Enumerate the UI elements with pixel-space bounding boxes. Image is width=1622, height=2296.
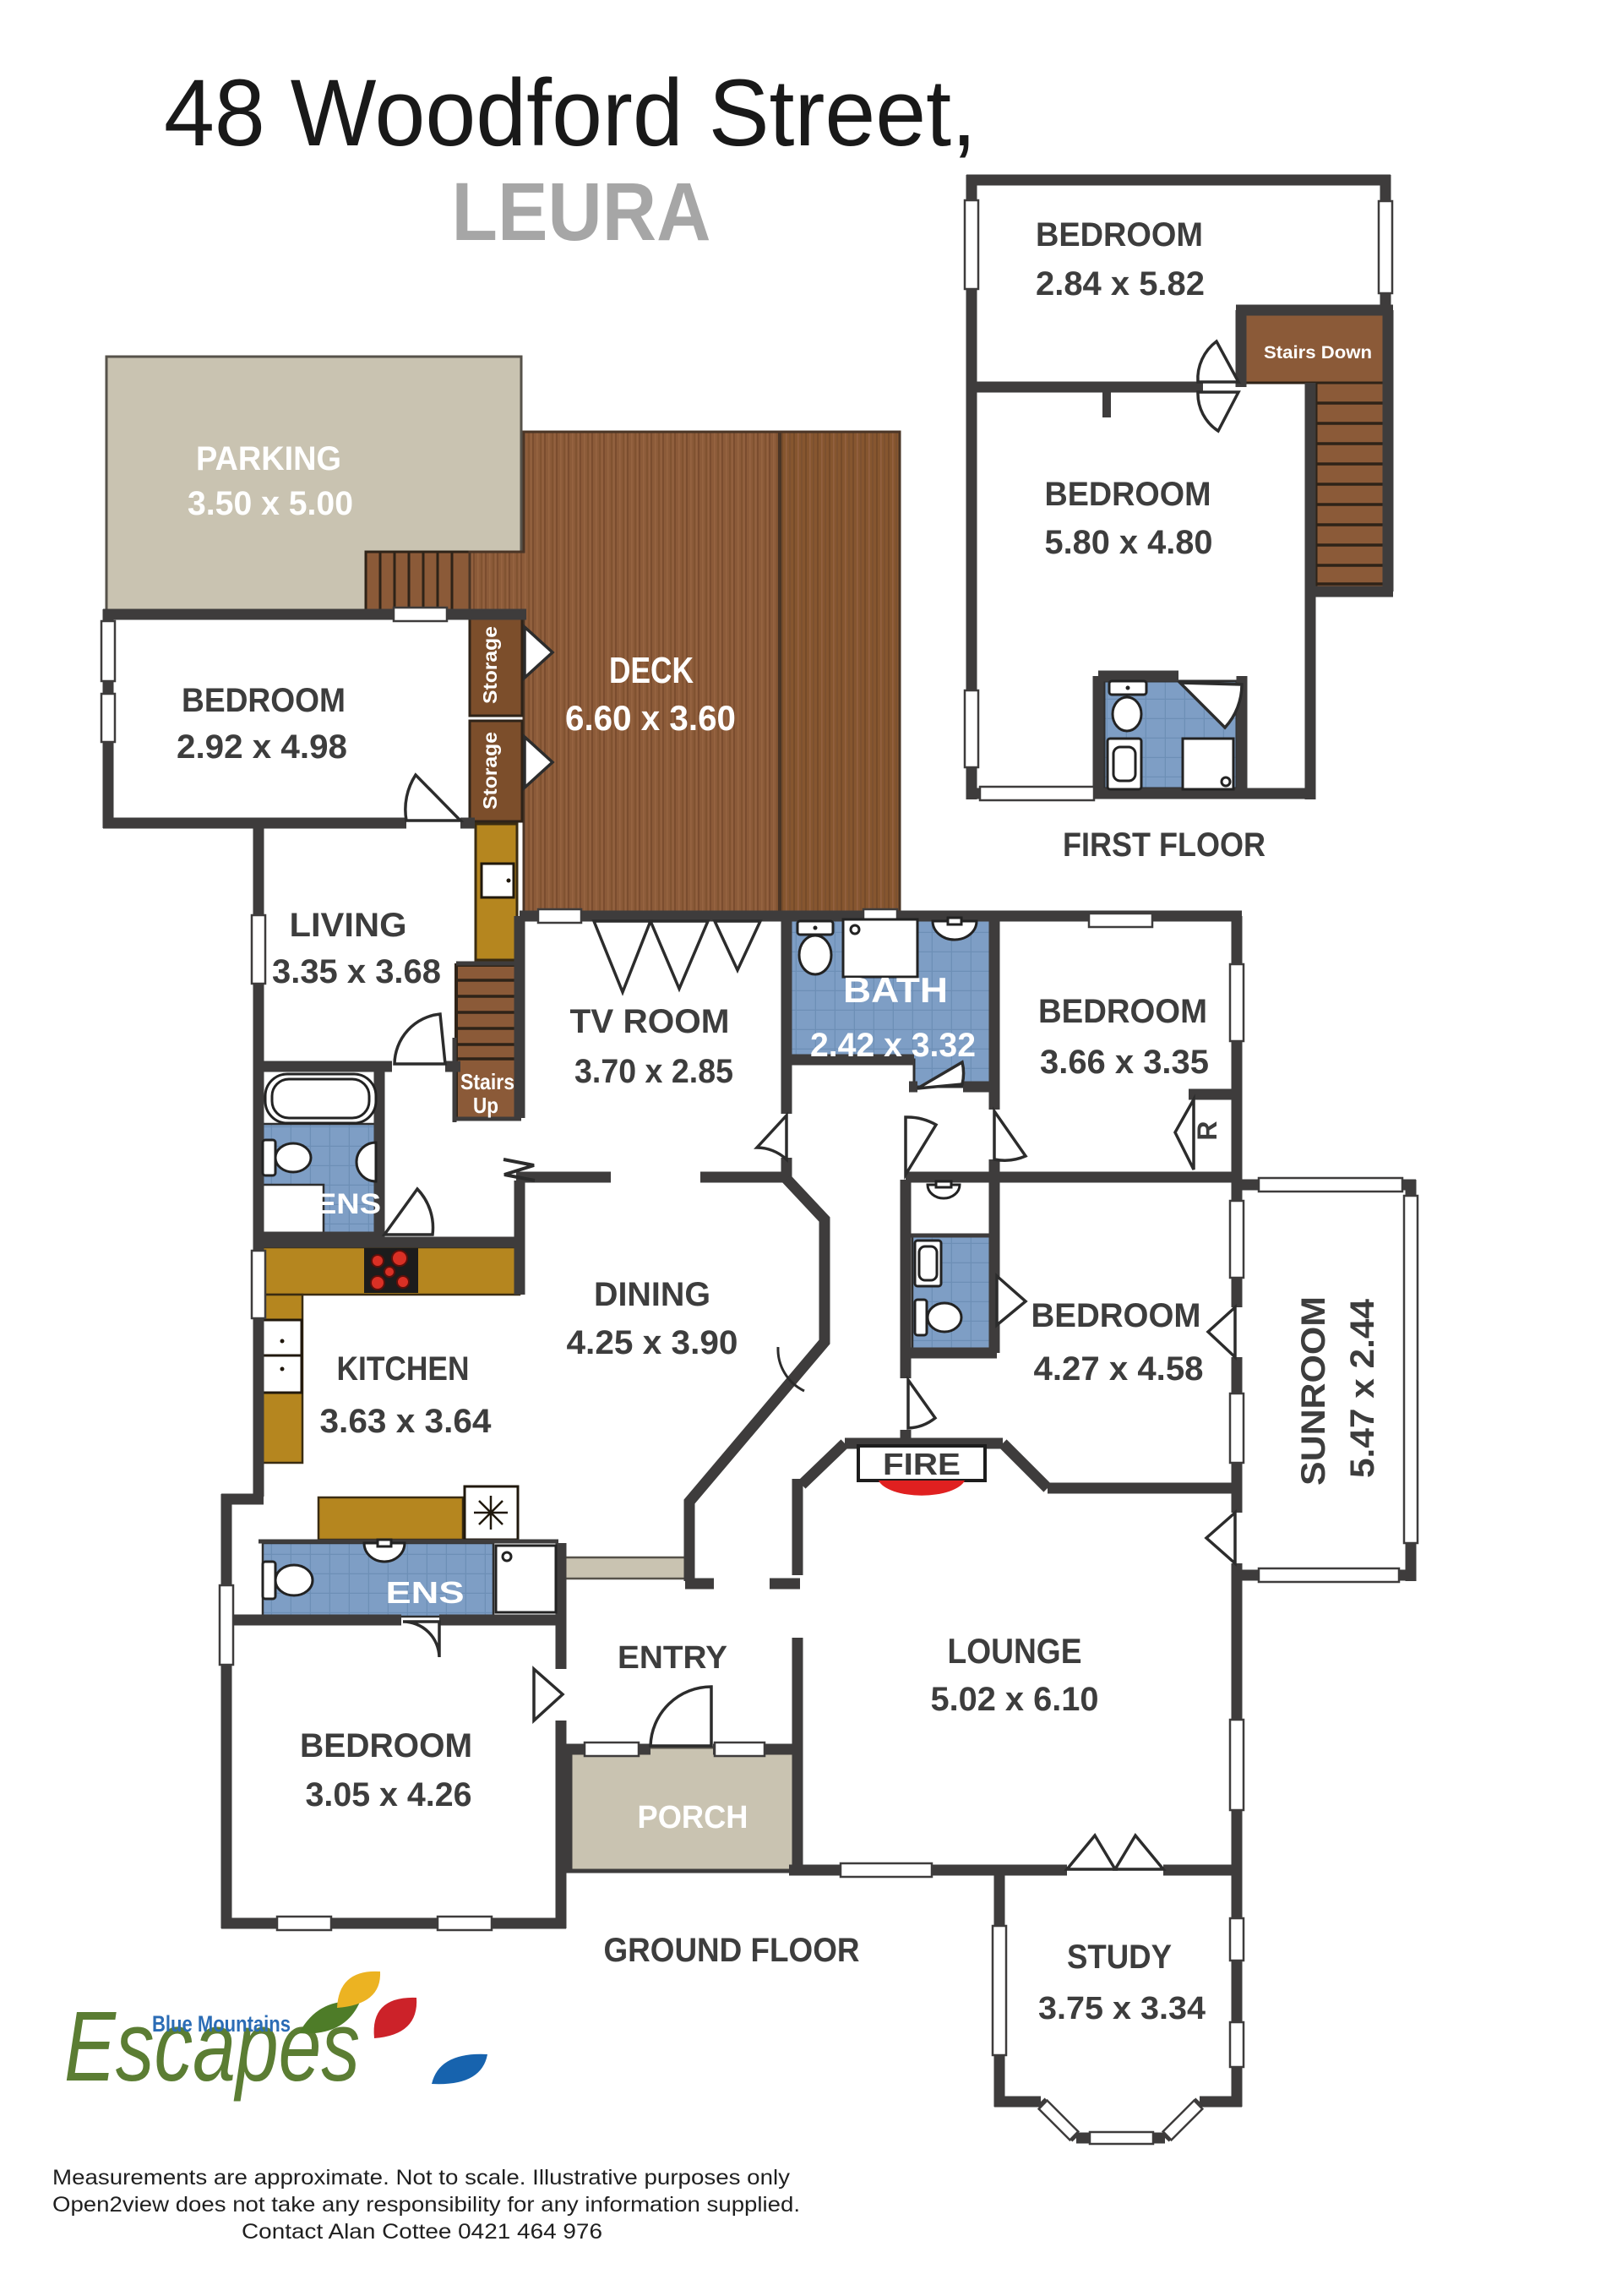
svg-text:3.70 x 2.85: 3.70 x 2.85 (574, 1053, 733, 1090)
svg-text:KITCHEN: KITCHEN (337, 1350, 470, 1388)
svg-text:LOUNGE: LOUNGE (948, 1631, 1082, 1671)
svg-text:PARKING: PARKING (196, 440, 341, 477)
svg-text:2.42 x 3.32: 2.42 x 3.32 (810, 1027, 976, 1064)
svg-text:Stairs: Stairs (460, 1069, 514, 1094)
svg-text:BEDROOM: BEDROOM (1036, 216, 1203, 254)
svg-text:BATH: BATH (843, 970, 948, 1010)
svg-text:Open2view does not take any re: Open2view does not take any responsibili… (52, 2193, 800, 2217)
svg-text:5.02 x 6.10: 5.02 x 6.10 (931, 1681, 1099, 1718)
svg-text:3.75 x 3.34: 3.75 x 3.34 (1038, 1991, 1206, 2026)
svg-text:BEDROOM: BEDROOM (1038, 993, 1207, 1030)
svg-text:6.60 x 3.60: 6.60 x 3.60 (565, 698, 736, 738)
svg-text:3.66 x 3.35: 3.66 x 3.35 (1040, 1044, 1209, 1081)
svg-text:5.80 x 4.80: 5.80 x 4.80 (1045, 524, 1213, 561)
svg-text:Blue Mountains: Blue Mountains (152, 2011, 291, 2037)
svg-text:Measurements are approximate.: Measurements are approximate. Not to sca… (52, 2166, 791, 2190)
svg-text:LIVING: LIVING (290, 907, 407, 944)
svg-text:SUNROOM: SUNROOM (1295, 1296, 1332, 1486)
svg-text:3.50 x 5.00: 3.50 x 5.00 (188, 485, 353, 522)
svg-text:Up: Up (473, 1093, 498, 1118)
svg-text:FIRE: FIRE (883, 1447, 961, 1481)
svg-text:4.25 x 3.90: 4.25 x 3.90 (567, 1324, 738, 1361)
svg-text:TV ROOM: TV ROOM (570, 1003, 730, 1040)
svg-text:PORCH: PORCH (638, 1800, 748, 1835)
svg-text:4.27 x 4.58: 4.27 x 4.58 (1034, 1350, 1204, 1388)
svg-text:2.84 x 5.82: 2.84 x 5.82 (1036, 265, 1205, 303)
svg-text:BEDROOM: BEDROOM (1045, 476, 1211, 513)
svg-text:FIRST FLOOR: FIRST FLOOR (1063, 826, 1265, 864)
svg-text:Storage: Storage (479, 732, 501, 810)
svg-text:48 Woodford Street,: 48 Woodford Street, (164, 60, 977, 166)
svg-text:2.92 x 4.98: 2.92 x 4.98 (177, 728, 347, 766)
svg-text:3.63 x 3.64: 3.63 x 3.64 (320, 1403, 493, 1440)
svg-text:GROUND FLOOR: GROUND FLOOR (604, 1932, 860, 1969)
svg-text:STUDY: STUDY (1067, 1939, 1172, 1976)
svg-text:BEDROOM: BEDROOM (1031, 1297, 1201, 1334)
svg-text:ENS: ENS (315, 1188, 381, 1220)
svg-text:5.47 x 2.44: 5.47 x 2.44 (1344, 1298, 1381, 1478)
svg-text:3.35 x 3.68: 3.35 x 3.68 (272, 953, 441, 990)
svg-text:BEDROOM: BEDROOM (182, 682, 346, 719)
svg-text:3.05 x 4.26: 3.05 x 4.26 (306, 1776, 472, 1813)
svg-text:DINING: DINING (594, 1276, 710, 1313)
svg-text:R: R (1192, 1121, 1222, 1140)
svg-text:BEDROOM: BEDROOM (300, 1727, 472, 1764)
svg-text:ENTRY: ENTRY (618, 1640, 727, 1676)
svg-text:LEURA: LEURA (452, 166, 711, 258)
svg-text:Storage: Storage (479, 626, 501, 704)
svg-text:Contact Alan Cottee 0421 464 9: Contact Alan Cottee 0421 464 976 (242, 2220, 602, 2244)
svg-text:Escapes: Escapes (64, 1991, 360, 2102)
svg-text:Stairs Down: Stairs Down (1264, 343, 1372, 363)
svg-text:ENS: ENS (386, 1575, 465, 1610)
svg-text:DECK: DECK (609, 650, 694, 691)
